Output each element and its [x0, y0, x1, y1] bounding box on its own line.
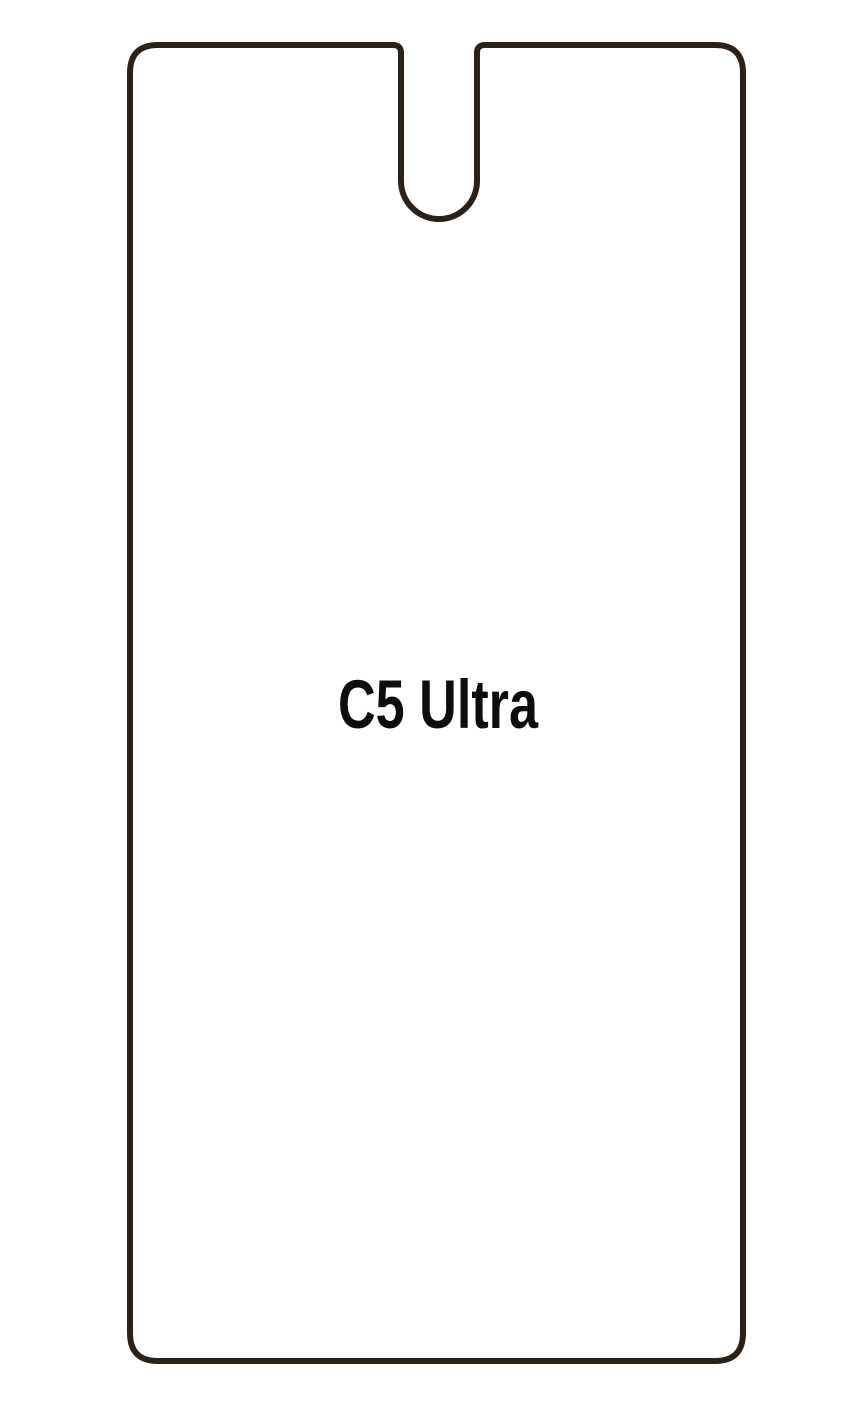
device-model-label: C5 Ultra [338, 666, 538, 743]
screen-protector-template: C5 Ultra [0, 0, 867, 1413]
protector-outline-svg: C5 Ultra [0, 0, 867, 1413]
